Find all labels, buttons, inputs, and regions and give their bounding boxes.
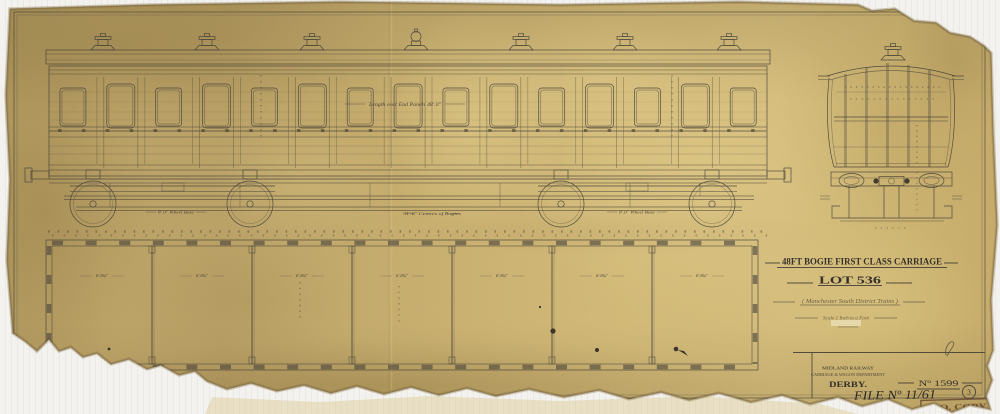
compartment-dim: 6'.8¾" [696, 273, 708, 278]
compartment-dim: 6'.8¾" [396, 273, 408, 278]
compartment-dim: 6'.8¾" [596, 273, 608, 278]
wheelbase-left-annotation: 8'.0" Wheel Base [158, 210, 194, 215]
drawing-canvas: Length over End Panels 48'.0" 8'.0" Whee… [0, 0, 1000, 414]
compartment-dim: 6'.8¾" [496, 273, 508, 278]
scanned-drawing-sheet: Length over End Panels 48'.0" 8'.0" Whee… [0, 0, 1000, 414]
lot-number: LOT 536 [819, 276, 881, 287]
compartment-dim: 6'.8¾" [296, 273, 308, 278]
department-name: CARRIAGE & WAGON DEPARTMENT [811, 373, 886, 377]
drawing-title: 48FT BOGIE FIRST CLASS CARRIAGE [782, 257, 942, 267]
length-annotation: Length over End Panels 48'.0" [368, 103, 442, 108]
compartment-dim: 6'.8¾" [196, 273, 208, 278]
wheelbase-right-annotation: 8'.0" Wheel Base [619, 210, 655, 215]
scale-note: Scale 1 Inch to a Foot [823, 317, 870, 322]
sheet-number-badge: 3 [967, 389, 971, 397]
compartment-dim: 6'.8¾" [96, 273, 108, 278]
route-note: ( Manchester South District Trains ) [802, 298, 898, 305]
company-name: MIDLAND RAILWAY [822, 366, 875, 371]
bogie-centres-annotation: 31'.6" Centres of Bogies [403, 211, 461, 216]
